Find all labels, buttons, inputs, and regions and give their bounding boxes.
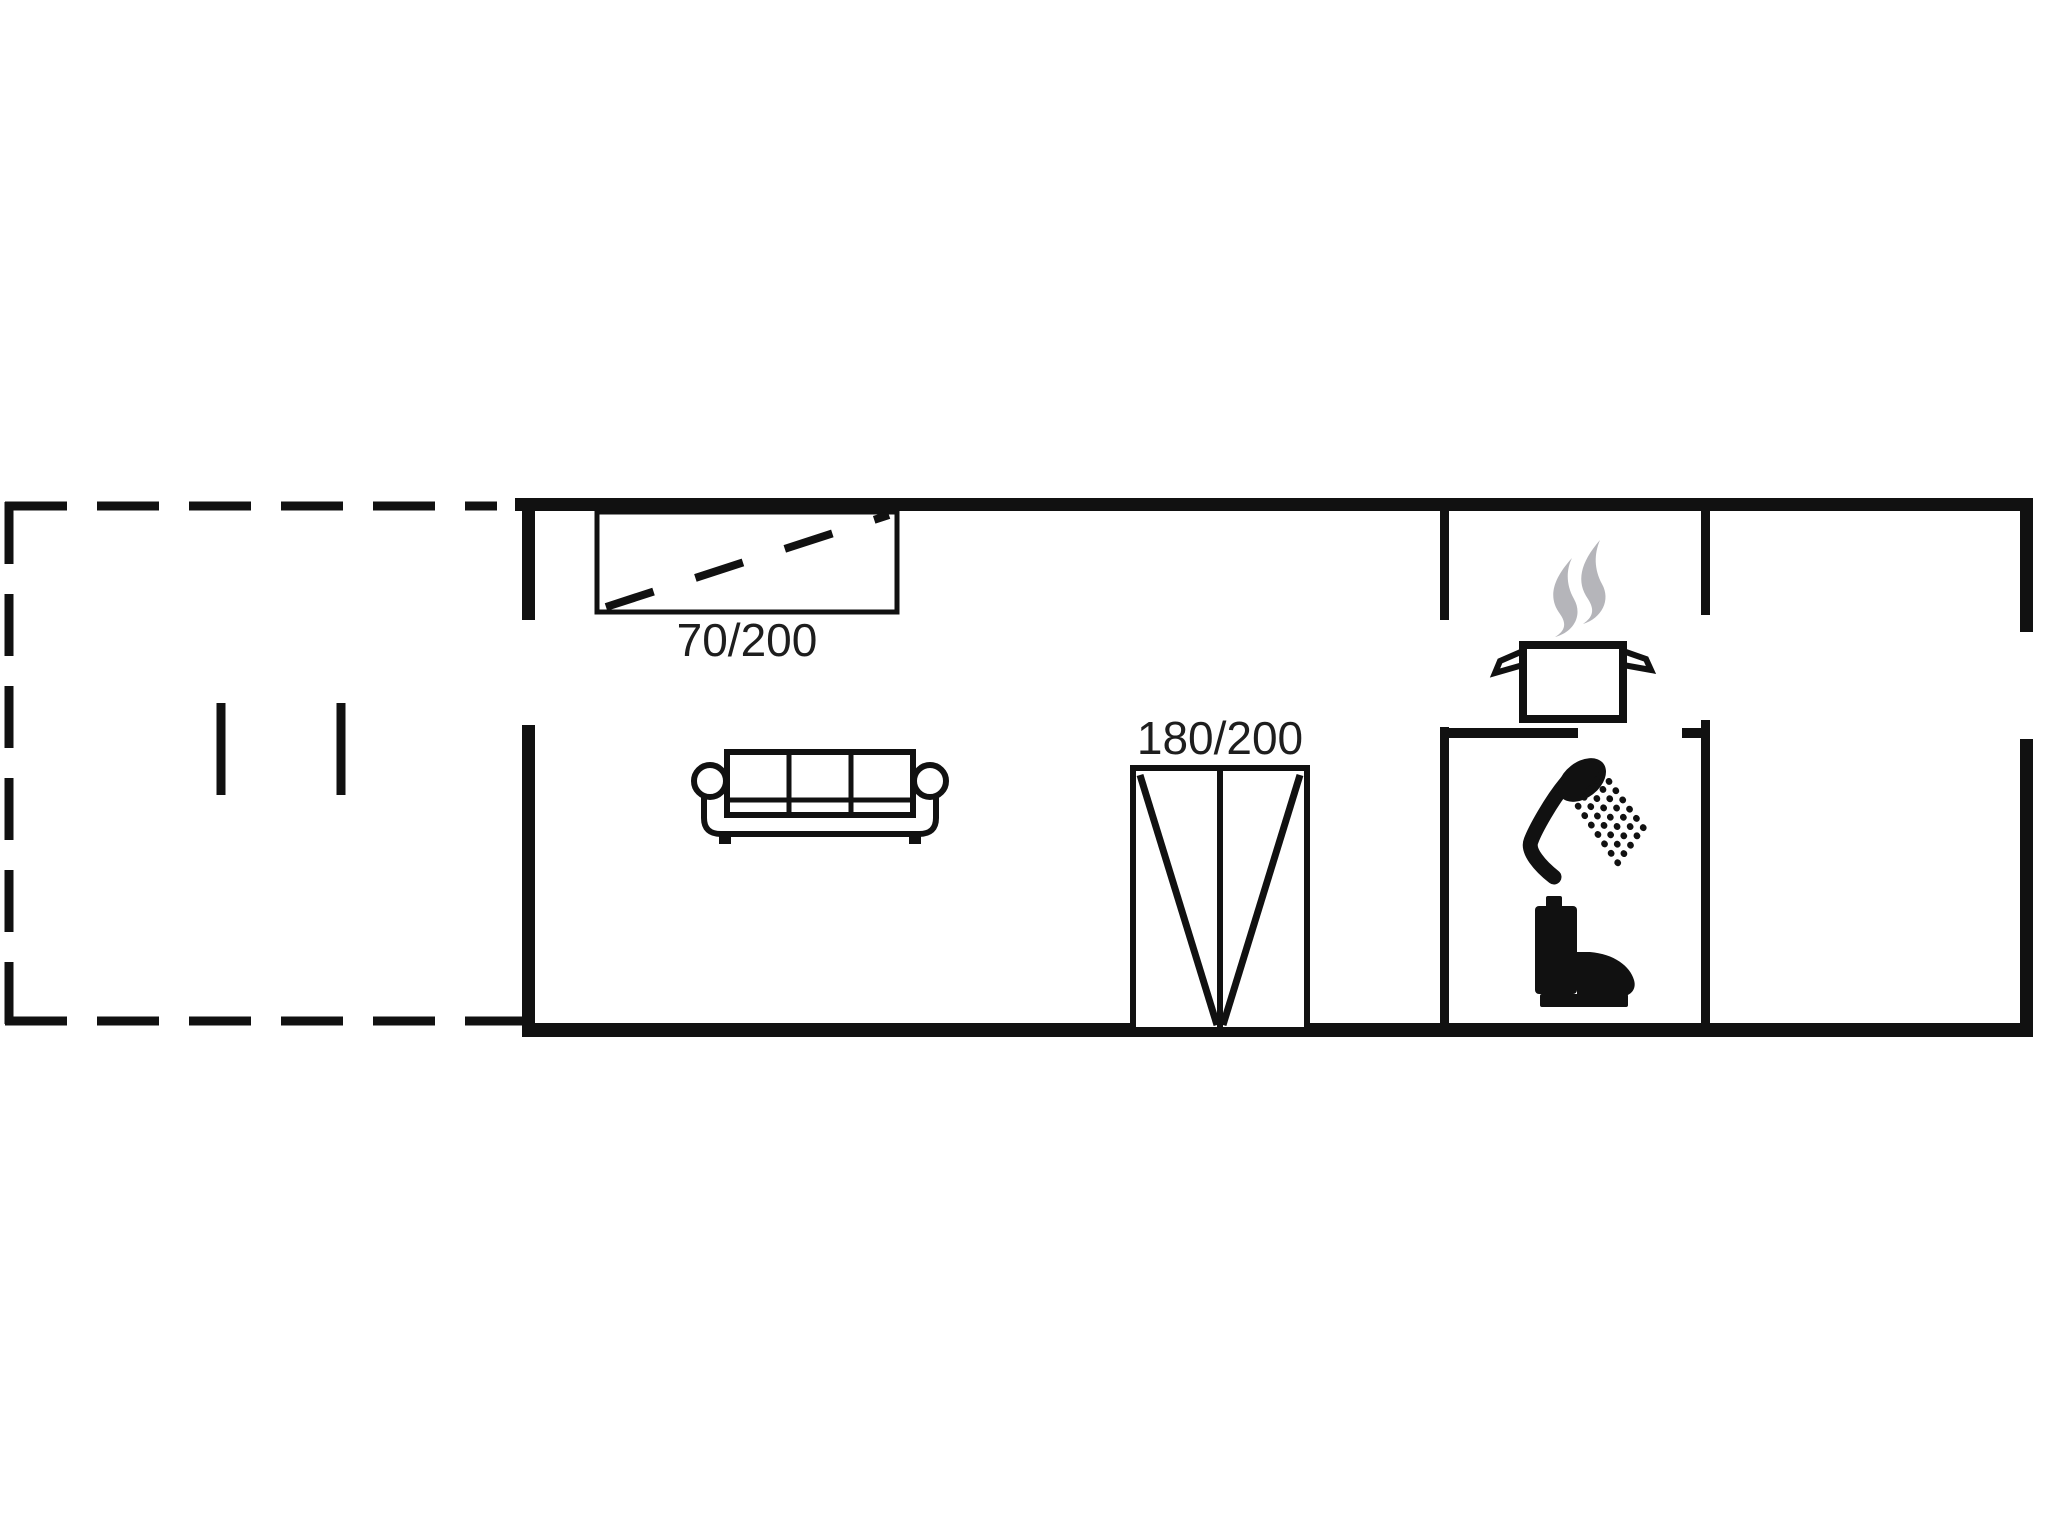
single-bed-icon: 70/200	[597, 512, 897, 666]
right-wall-lower-segment	[2020, 739, 2033, 1037]
right-wall-upper-segment	[2020, 498, 2033, 632]
terrace	[5, 502, 530, 1030]
kitchen-wall-upper-segment	[1440, 511, 1449, 620]
cooking-pot-icon	[1523, 645, 1623, 719]
toilet-bowl	[1577, 952, 1635, 997]
sofa-right-foot	[909, 834, 921, 844]
sofa-icon	[694, 752, 946, 844]
bedroom-wall-upper-segment	[1701, 511, 1710, 615]
sofa-left-foot	[719, 834, 731, 844]
floorplan-canvas: 70/200 180/200	[0, 0, 2048, 1536]
floorplan-drawing: 70/200 180/200	[0, 0, 2048, 1536]
toilet-icon	[1535, 896, 1635, 1007]
double-bed-label: 180/200	[1137, 712, 1303, 764]
single-bed-label: 70/200	[677, 614, 818, 666]
sofa-left-armrest	[694, 765, 726, 797]
shower-arm	[1530, 783, 1566, 877]
bathroom-top-wall	[1449, 728, 1578, 738]
bathroom-left-wall	[1440, 727, 1449, 1027]
bathroom-top-wall-stub	[1682, 728, 1701, 738]
kitchen-icons	[1495, 540, 1651, 719]
left-wall-lower-segment	[522, 725, 535, 1037]
double-bed-icon: 180/200	[1133, 712, 1307, 1030]
pot-left-handle	[1495, 651, 1523, 673]
sofa-backrest	[727, 752, 913, 815]
steam-icon	[1553, 558, 1577, 637]
left-wall-upper-segment	[522, 498, 535, 620]
sofa-right-armrest	[914, 765, 946, 797]
bathroom-icons	[1530, 749, 1645, 1007]
steam-icon-2	[1581, 540, 1605, 624]
toilet-base	[1540, 994, 1628, 1007]
top-wall	[515, 498, 2033, 511]
pot-right-handle	[1623, 651, 1651, 670]
toilet-tank	[1535, 906, 1577, 994]
bedroom-wall-lower-segment	[1701, 720, 1710, 1027]
